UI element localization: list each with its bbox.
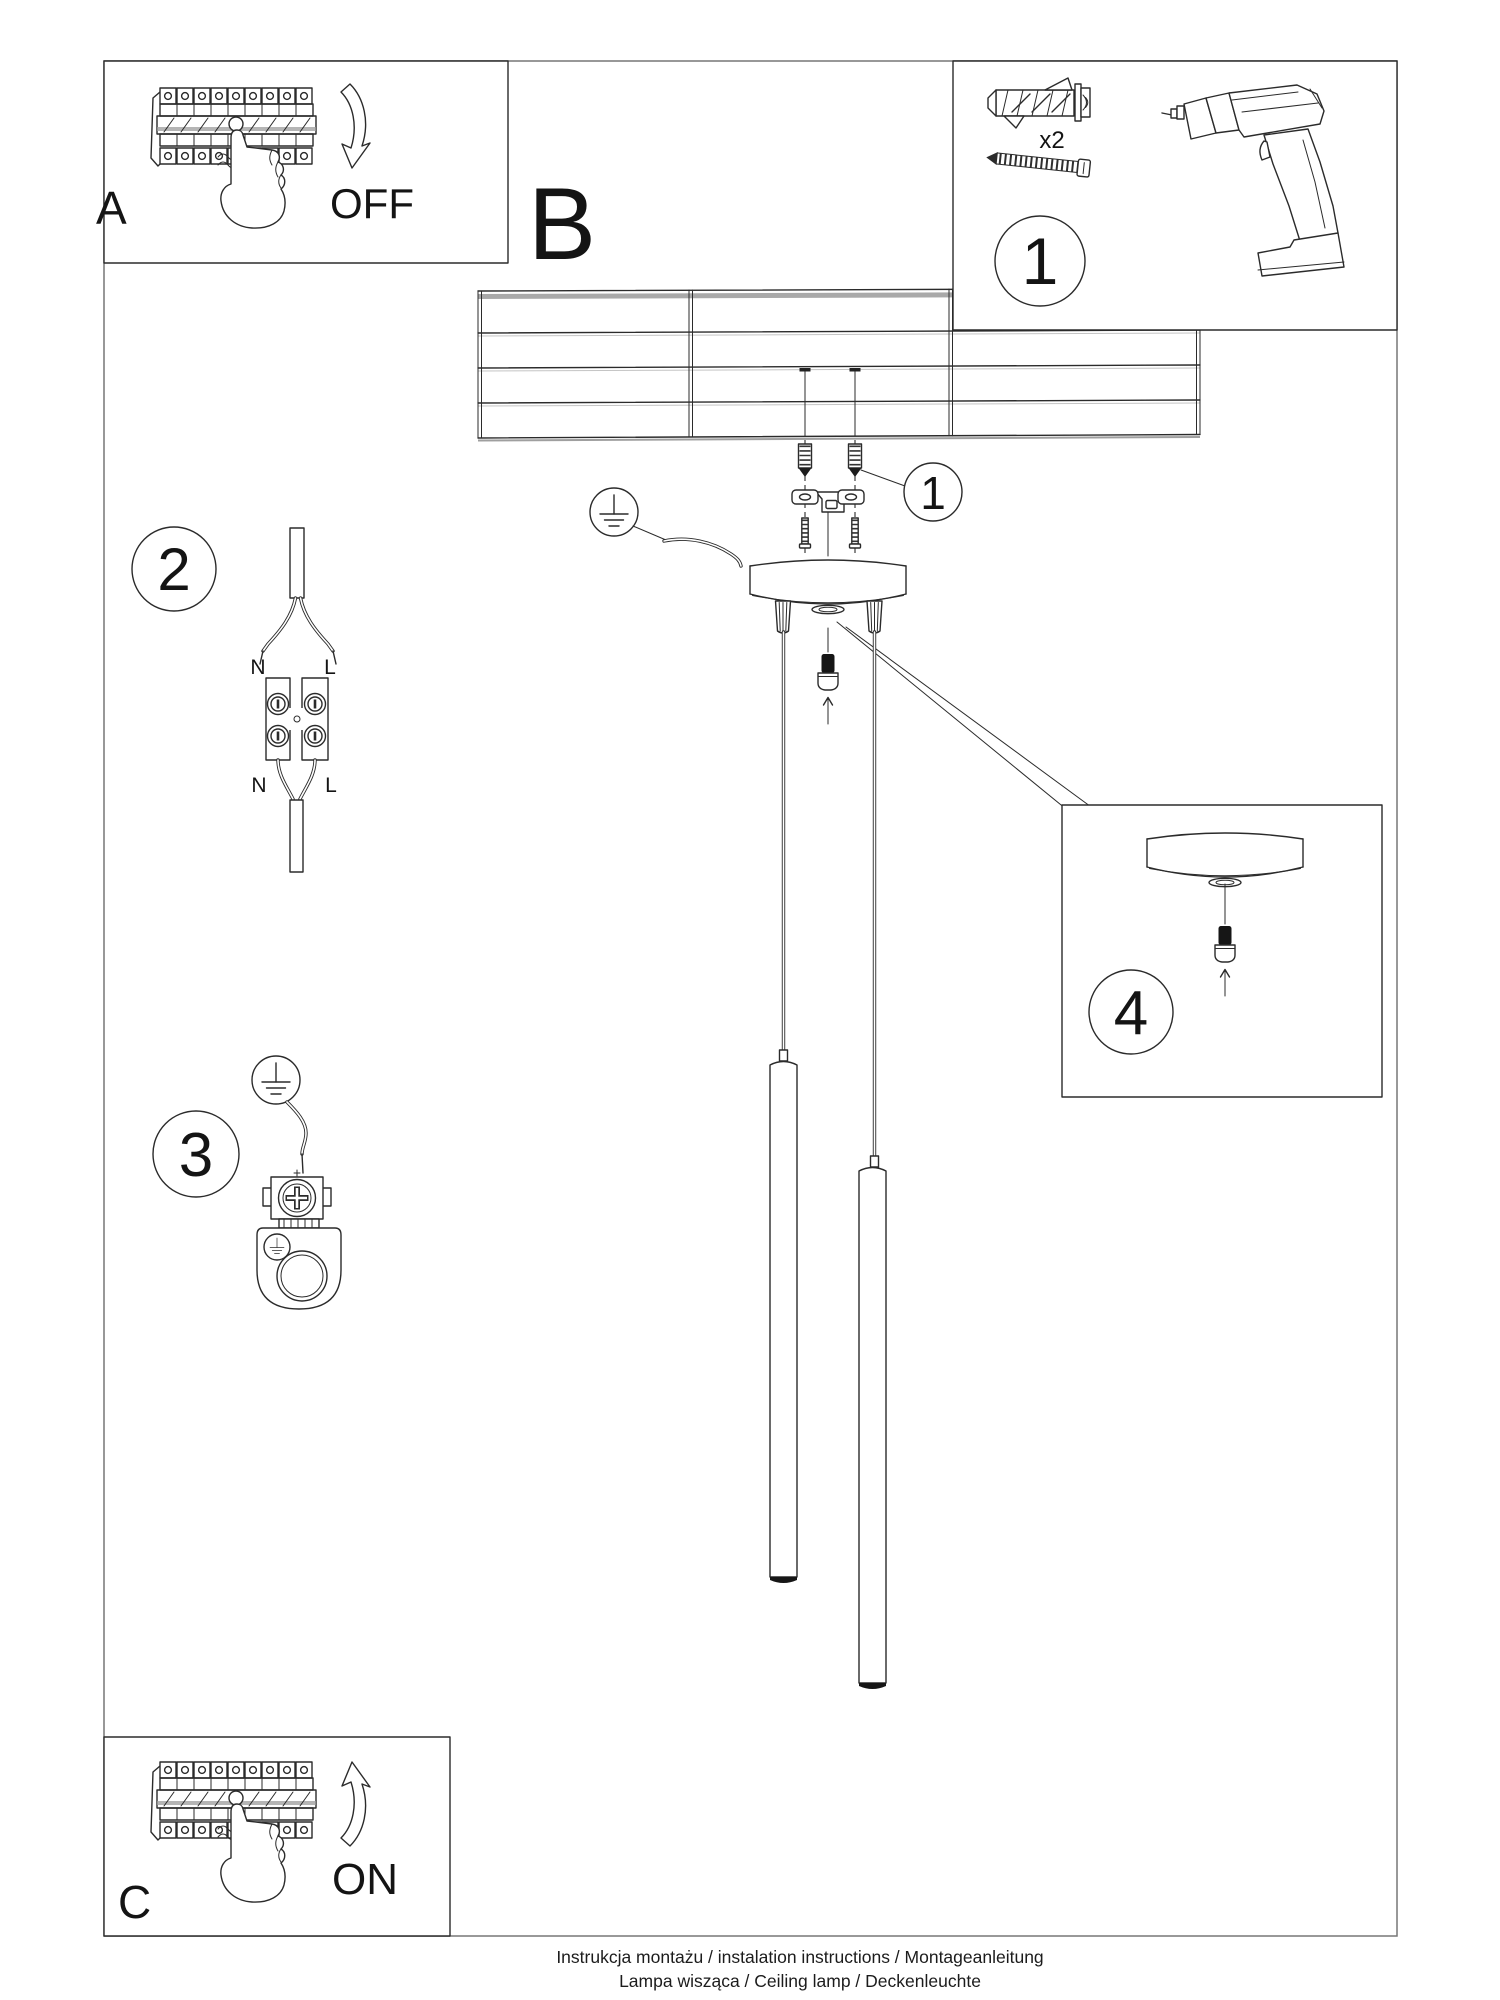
cord-grip xyxy=(776,601,791,633)
wire-label-n-bottom: N xyxy=(251,774,266,797)
panel-3-earthing: 3 xyxy=(153,1056,341,1309)
terminal-screw xyxy=(268,694,289,715)
terminal-block xyxy=(266,678,328,760)
locking-screw xyxy=(818,654,838,724)
wire-label-l-top: L xyxy=(324,656,336,679)
wall-plug-icon xyxy=(799,444,812,477)
cord-ferrule xyxy=(780,1050,788,1061)
terminal-screw xyxy=(268,726,289,747)
pendant-tube xyxy=(859,1168,886,1690)
bracket-screw xyxy=(800,518,811,548)
ground-symbol-icon xyxy=(252,1056,300,1104)
detail-leader xyxy=(837,622,1066,809)
ground-leader xyxy=(633,526,666,540)
panel-c-power-on: C ON xyxy=(104,1737,450,1936)
ground-wire xyxy=(664,539,741,566)
wall-plug-icon xyxy=(849,444,862,477)
supply-wires xyxy=(260,598,336,664)
step-4-badge: 4 xyxy=(1089,970,1173,1054)
step-1-number: 1 xyxy=(1022,224,1059,298)
step-1-badge: 1 xyxy=(995,216,1085,306)
earth-wire xyxy=(287,1102,306,1173)
callout-1-number: 1 xyxy=(920,467,946,519)
wire-label-l-bottom: L xyxy=(325,774,337,797)
step-4-number: 4 xyxy=(1114,979,1148,1048)
cord-grip xyxy=(867,601,882,633)
instruction-drawing: 1 A OFF B xyxy=(0,0,1500,2000)
cord-ferrule xyxy=(871,1156,879,1167)
earth-terminal-screw xyxy=(263,1170,331,1219)
off-label: OFF xyxy=(330,180,414,227)
anchor-quantity: x2 xyxy=(1039,127,1064,154)
panel-1-hardware: x2 1 xyxy=(953,61,1397,330)
pendant-tube xyxy=(770,1062,797,1584)
terminal-screw xyxy=(305,694,326,715)
callout-1-badge: 1 xyxy=(904,463,962,521)
panel-4-detail: 4 xyxy=(1062,805,1382,1097)
step-2-badge: 2 xyxy=(132,527,216,611)
supply-cable xyxy=(290,528,304,598)
footer-line-2: Lampa wisząca / Ceiling lamp / Deckenleu… xyxy=(619,1971,981,1991)
instruction-sheet: 1 A OFF B xyxy=(0,0,1500,2000)
step-3-number: 3 xyxy=(179,1121,213,1190)
mounting-diagram: 1 xyxy=(590,368,1098,1689)
step-2-number: 2 xyxy=(157,536,190,603)
lamp-wires xyxy=(278,760,315,799)
ground-symbol-icon xyxy=(590,488,638,536)
panel-a-label: A xyxy=(96,182,127,234)
detail-leader xyxy=(846,627,1098,812)
lamp-cable xyxy=(290,800,303,872)
panel-2-wiring: 2 N L N L xyxy=(132,527,337,872)
panel-c-label: C xyxy=(118,1876,151,1928)
on-label: ON xyxy=(332,1855,398,1904)
ground-lug xyxy=(257,1219,341,1309)
mounting-bracket xyxy=(792,490,864,512)
footer-line-1: Instrukcja montażu / instalation instruc… xyxy=(556,1947,1043,1967)
footer: Instrukcja montażu / instalation instruc… xyxy=(556,1947,1043,1991)
canopy xyxy=(750,560,906,614)
panel-a-power-off: A OFF xyxy=(96,61,508,263)
step-3-badge: 3 xyxy=(153,1111,239,1197)
wire-label-n-top: N xyxy=(250,656,265,679)
callout-leader xyxy=(861,470,905,486)
panel-b-label: B xyxy=(528,167,596,281)
terminal-screw xyxy=(305,726,326,747)
bracket-screw xyxy=(850,518,861,548)
